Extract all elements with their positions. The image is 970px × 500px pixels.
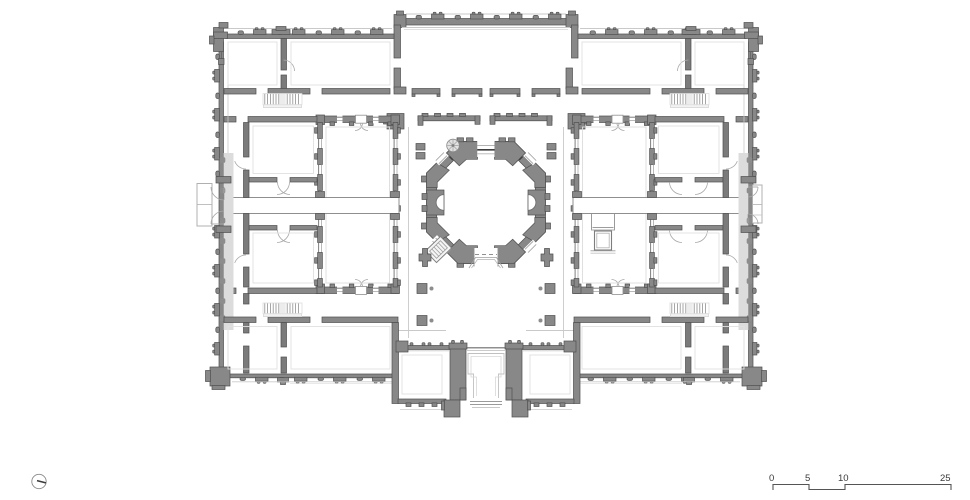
- svg-text:10: 10: [838, 473, 849, 484]
- svg-text:5: 5: [805, 473, 810, 484]
- svg-text:25: 25: [940, 473, 951, 484]
- svg-text:0: 0: [769, 473, 774, 484]
